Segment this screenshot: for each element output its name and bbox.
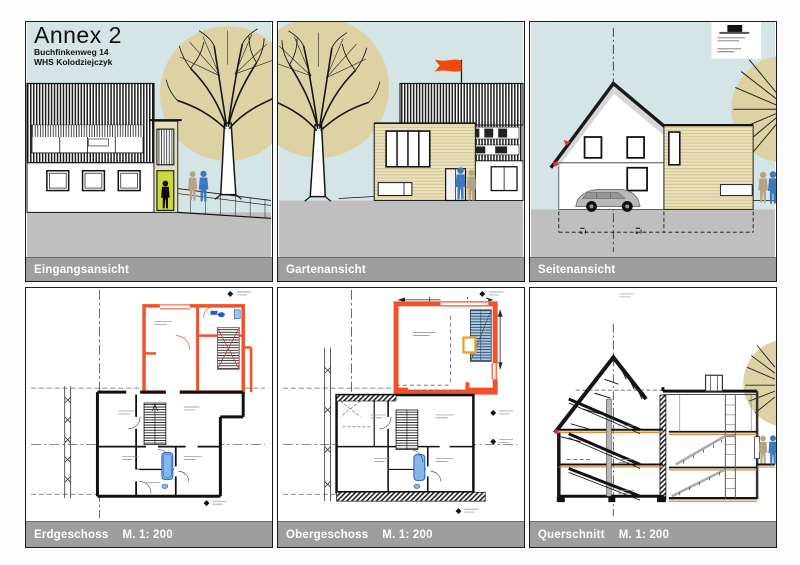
- caption-bar: Querschnitt M. 1: 200: [530, 521, 776, 547]
- ground: [27, 212, 271, 257]
- caption-bar: Eingangsansicht: [26, 257, 272, 281]
- sheet-address: Buchfinkenweg 14: [34, 47, 122, 57]
- floorplan-erdgeschoss-svg: [26, 288, 272, 521]
- new-stair: [217, 328, 239, 370]
- caption-bar: Seitenansicht: [530, 257, 776, 281]
- new-stair-blue: [470, 310, 491, 362]
- caption-label: Erdgeschoss: [34, 529, 108, 541]
- caption-scale: M. 1: 200: [122, 529, 172, 541]
- caption-scale: M. 1: 200: [619, 529, 669, 541]
- caption-scale: M. 1: 200: [382, 529, 432, 541]
- obergeschoss-drawing: [278, 288, 524, 521]
- floorplan-obergeschoss-svg: [278, 288, 524, 521]
- panel-obergeschoss: Obergeschoss M. 1: 200: [277, 287, 525, 548]
- entry-tower: [150, 120, 182, 212]
- sheet-title: Annex 2: [34, 23, 122, 47]
- stair: [144, 403, 166, 445]
- caption-label: Seitenansicht: [538, 264, 615, 276]
- stair: [396, 410, 418, 450]
- querschnitt-drawing: [530, 288, 776, 521]
- panel-seitenansicht: Seitenansicht: [529, 21, 777, 282]
- caption-label: Obergeschoss: [286, 529, 368, 541]
- elevation-garden-svg: [278, 22, 524, 257]
- erdgeschoss-drawing: [26, 288, 272, 521]
- caption-label: Gartenansicht: [286, 264, 366, 276]
- caption-label: Eingangsansicht: [34, 264, 129, 276]
- panel-gartenansicht: Gartenansicht: [277, 21, 525, 282]
- gartenansicht-drawing: [278, 22, 524, 257]
- sheet-author: WHS Kolodziejczyk: [34, 57, 122, 67]
- eingangsansicht-drawing: Annex 2 Buchfinkenweg 14 WHS Kolodziejcz…: [26, 22, 272, 257]
- caption-bar: Gartenansicht: [278, 257, 524, 281]
- section-svg: [530, 288, 776, 521]
- panel-erdgeschoss: Erdgeschoss M. 1: 200: [25, 287, 273, 548]
- ground: [279, 200, 523, 257]
- hatched-band-top: [337, 395, 396, 401]
- seitenansicht-drawing: [530, 22, 776, 257]
- elevation-side-svg: [530, 22, 776, 257]
- logo-stamp: [712, 22, 762, 59]
- caption-label: Querschnitt: [538, 529, 605, 541]
- panel-eingangsansicht: Annex 2 Buchfinkenweg 14 WHS Kolodziejcz…: [25, 21, 273, 282]
- drawing-sheet: Annex 2 Buchfinkenweg 14 WHS Kolodziejcz…: [0, 0, 800, 565]
- caption-bar: Erdgeschoss M. 1: 200: [26, 521, 272, 547]
- title-block: Annex 2 Buchfinkenweg 14 WHS Kolodziejcz…: [34, 23, 122, 68]
- ground: [531, 209, 775, 257]
- panel-querschnitt: Querschnitt M. 1: 200: [529, 287, 777, 548]
- building: [27, 83, 154, 212]
- hatched-band-bottom: [337, 492, 486, 501]
- caption-bar: Obergeschoss M. 1: 200: [278, 521, 524, 547]
- shaft-box: [463, 338, 475, 353]
- red-marker: [555, 430, 559, 434]
